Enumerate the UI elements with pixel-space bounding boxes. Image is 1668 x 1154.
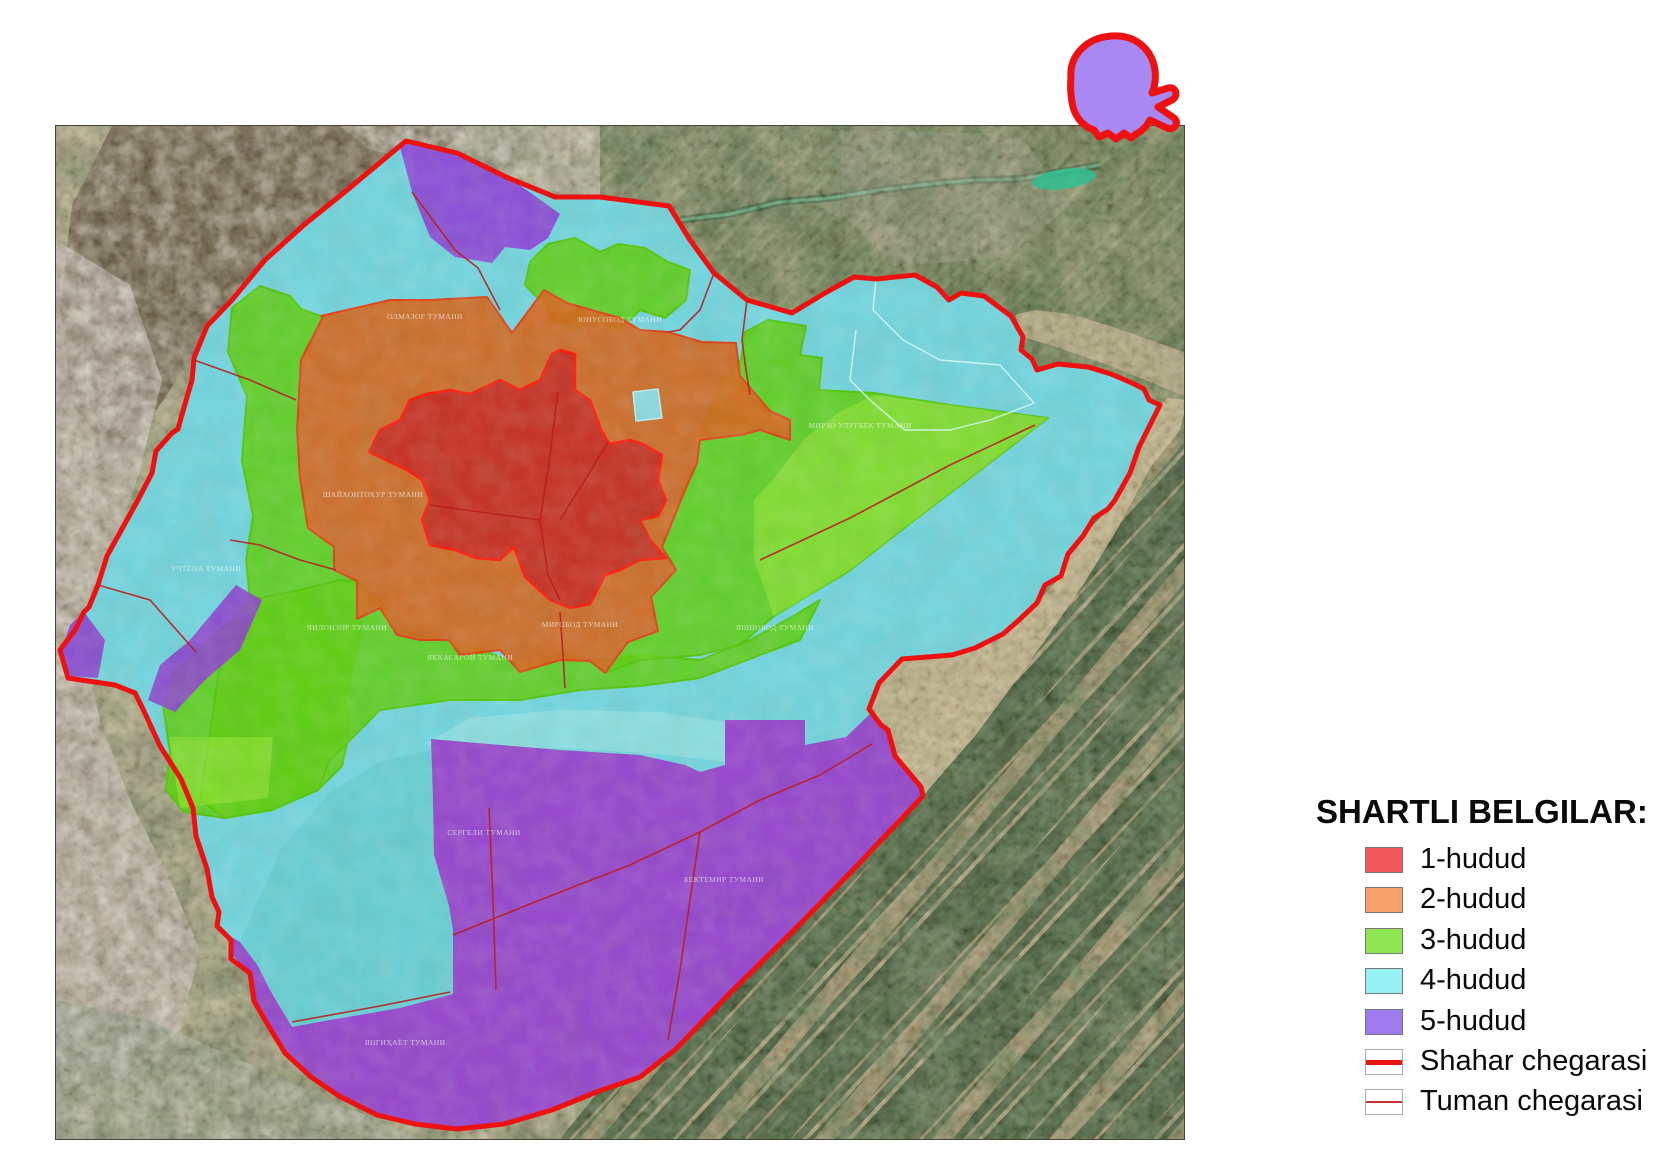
svg-text:МИРОБОД ТУМАНИ: МИРОБОД ТУМАНИ [542, 620, 619, 629]
svg-text:ЯККАСАРОЙ ТУМАНИ: ЯККАСАРОЙ ТУМАНИ [427, 653, 513, 662]
svg-text:ОЛМАЗОР ТУМАНИ: ОЛМАЗОР ТУМАНИ [387, 312, 463, 321]
svg-text:МИРЗО УЛУҒБЕК ТУМАНИ: МИРЗО УЛУҒБЕК ТУМАНИ [808, 421, 911, 430]
svg-text:БЕКТЕМИР ТУМАНИ: БЕКТЕМИР ТУМАНИ [684, 875, 764, 884]
svg-text:ШАЙХОНТОХУР ТУМАНИ: ШАЙХОНТОХУР ТУМАНИ [323, 490, 424, 499]
svg-text:ЮНУСОБОД ТУМАНИ: ЮНУСОБОД ТУМАНИ [578, 315, 662, 324]
svg-text:СЕРГЕЛИ ТУМАНИ: СЕРГЕЛИ ТУМАНИ [447, 828, 521, 837]
svg-text:ЯНГИҲАЁТ ТУМАНИ: ЯНГИҲАЁТ ТУМАНИ [365, 1038, 446, 1047]
svg-text:УЧТЕПА ТУМАНИ: УЧТЕПА ТУМАНИ [171, 564, 241, 573]
svg-text:ЧИЛОНЗОР ТУМАНИ: ЧИЛОНЗОР ТУМАНИ [307, 623, 387, 632]
svg-text:ЯШНОБОД ТУМАНИ: ЯШНОБОД ТУМАНИ [736, 623, 814, 632]
